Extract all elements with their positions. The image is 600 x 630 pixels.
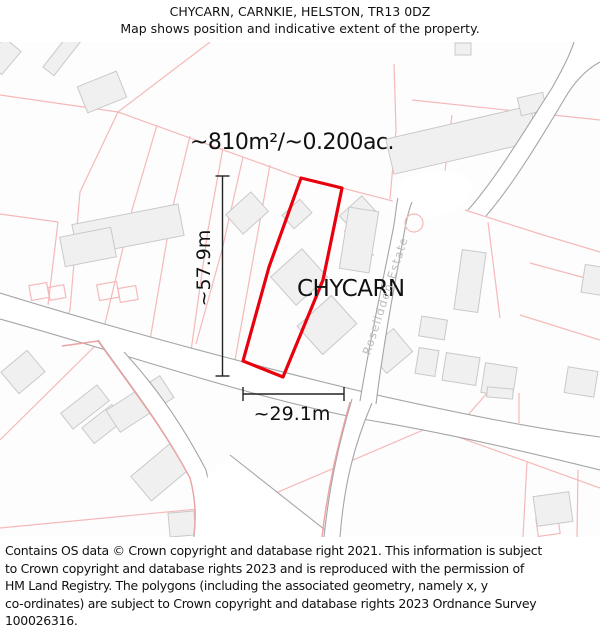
copyright-line: co-ordinates) are subject to Crown copyr… (5, 595, 596, 613)
height-dimension-label: ~57.9m (193, 230, 215, 307)
page-title: CHYCARN, CARNKIE, HELSTON, TR13 0DZ (0, 3, 600, 20)
map-canvas: ~810m²/~0.200ac. CHYCARN ~57.9m ~29.1m R… (0, 42, 600, 537)
width-dimension-label: ~29.1m (254, 403, 331, 425)
copyright-notice: Contains OS data © Crown copyright and d… (0, 537, 600, 625)
copyright-line: HM Land Registry. The polygons (includin… (5, 577, 596, 595)
page-subtitle: Map shows position and indicative extent… (0, 20, 600, 37)
map-header: CHYCARN, CARNKIE, HELSTON, TR13 0DZ Map … (0, 0, 600, 42)
map: ~810m²/~0.200ac. CHYCARN ~57.9m ~29.1m R… (0, 42, 600, 537)
area-label: ~810m²/~0.200ac. (190, 130, 394, 155)
copyright-line: to Crown copyright and database rights 2… (5, 560, 596, 578)
copyright-line: 100026316. (5, 612, 596, 630)
copyright-line: Contains OS data © Crown copyright and d… (5, 542, 596, 560)
page: CHYCARN, CARNKIE, HELSTON, TR13 0DZ Map … (0, 0, 600, 625)
